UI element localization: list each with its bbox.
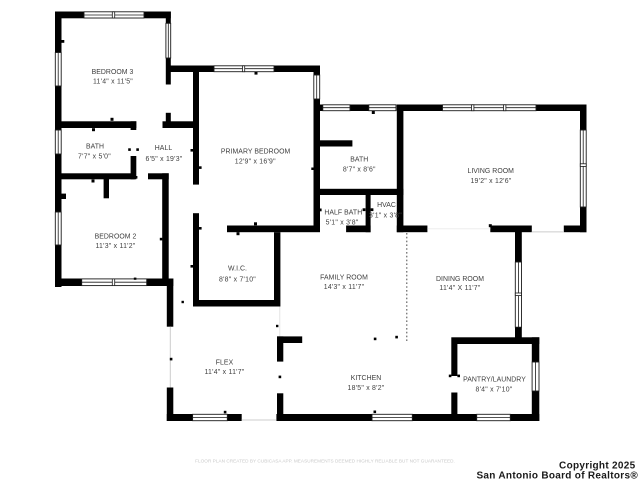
svg-text:11'4" X 11'7": 11'4" X 11'7" bbox=[439, 285, 480, 292]
svg-text:11'3" x 11'2": 11'3" x 11'2" bbox=[95, 243, 135, 250]
svg-text:BEDROOM 2: BEDROOM 2 bbox=[95, 233, 137, 240]
svg-text:DINING ROOM: DINING ROOM bbox=[436, 276, 484, 283]
svg-text:14'3" x 11'7": 14'3" x 11'7" bbox=[324, 284, 365, 291]
svg-text:11'4" x 11'7": 11'4" x 11'7" bbox=[204, 369, 244, 376]
svg-text:19'2" x 12'6": 19'2" x 12'6" bbox=[470, 178, 511, 185]
svg-text:FLEX: FLEX bbox=[216, 360, 234, 367]
svg-text:HALL: HALL bbox=[155, 145, 173, 152]
svg-text:3'1" x 3'8": 3'1" x 3'8" bbox=[369, 213, 402, 220]
svg-text:BATH: BATH bbox=[350, 156, 368, 163]
svg-text:18'5" x 8'2": 18'5" x 8'2" bbox=[348, 385, 385, 392]
svg-text:8'7" x 8'6": 8'7" x 8'6" bbox=[343, 166, 376, 173]
svg-text:W.I.C.: W.I.C. bbox=[228, 266, 247, 273]
svg-text:PANTRY/LAUNDRY: PANTRY/LAUNDRY bbox=[463, 376, 526, 383]
svg-text:FLOOR PLAN CREATED BY CUBICASA: FLOOR PLAN CREATED BY CUBICASA APP. MEAS… bbox=[195, 459, 455, 464]
svg-text:KITCHEN: KITCHEN bbox=[351, 375, 382, 382]
svg-text:8'8" x 7'10": 8'8" x 7'10" bbox=[219, 276, 256, 283]
svg-text:HALF BATH: HALF BATH bbox=[324, 209, 362, 216]
svg-text:BATH: BATH bbox=[86, 144, 104, 151]
svg-text:PRIMARY BEDROOM: PRIMARY BEDROOM bbox=[221, 149, 291, 156]
svg-text:BEDROOM 3: BEDROOM 3 bbox=[92, 69, 134, 76]
svg-text:11'4" x 11'5": 11'4" x 11'5" bbox=[93, 78, 133, 85]
svg-text:8'4" x 7'10": 8'4" x 7'10" bbox=[476, 387, 513, 394]
svg-text:12'9" x 16'9": 12'9" x 16'9" bbox=[235, 158, 276, 165]
svg-text:7'7" x 5'0": 7'7" x 5'0" bbox=[78, 154, 111, 161]
svg-text:FAMILY ROOM: FAMILY ROOM bbox=[320, 275, 368, 282]
svg-text:5'1" x 3'8": 5'1" x 3'8" bbox=[326, 219, 359, 226]
svg-text:HVAC: HVAC bbox=[377, 202, 396, 209]
svg-text:San Antonio Board of Realtors®: San Antonio Board of Realtors® bbox=[476, 470, 638, 480]
svg-text:LIVING ROOM: LIVING ROOM bbox=[467, 168, 514, 175]
svg-text:6'5" x 19'3": 6'5" x 19'3" bbox=[146, 156, 183, 163]
